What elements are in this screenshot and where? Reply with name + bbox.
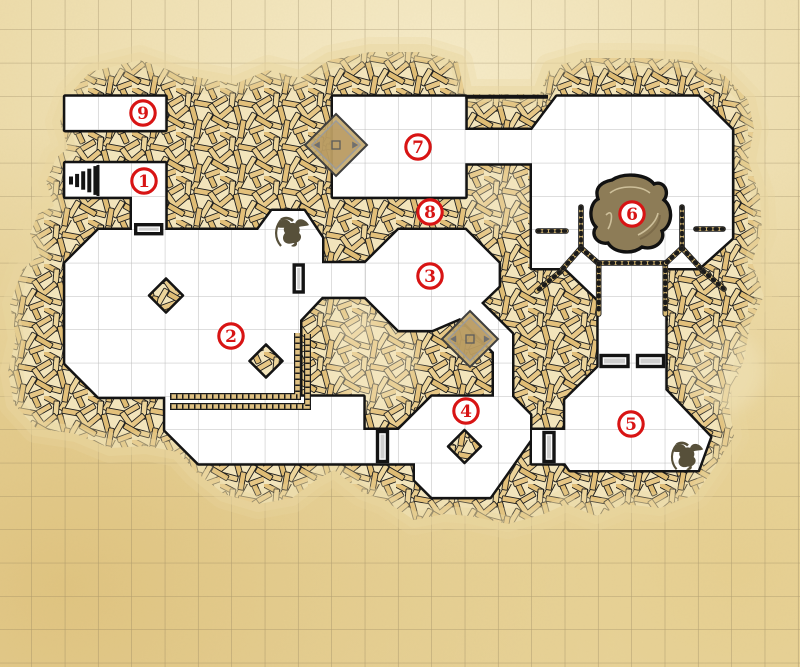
stairs-step-2 <box>81 171 85 189</box>
door-room1-south <box>136 225 162 234</box>
room-marker-label-2: 2 <box>225 327 237 347</box>
door-passage-b <box>638 356 664 367</box>
stairs-step-0 <box>69 177 73 185</box>
room-marker-2: 2 <box>219 324 243 348</box>
room-marker-label-4: 4 <box>460 402 472 422</box>
room-marker-label-1: 1 <box>138 172 150 192</box>
stairs-step-1 <box>75 174 79 187</box>
room-marker-7: 7 <box>406 135 430 159</box>
room-marker-1: 1 <box>132 169 156 193</box>
room-marker-3: 3 <box>418 264 442 288</box>
room-marker-label-3: 3 <box>424 267 436 287</box>
dungeon-map-stage: 123456789 <box>0 0 800 667</box>
room-marker-label-8: 8 <box>424 203 436 223</box>
room-marker-6: 6 <box>620 202 644 226</box>
room-marker-8: 8 <box>418 200 442 224</box>
room-marker-label-6: 6 <box>626 205 638 225</box>
room-marker-4: 4 <box>454 399 478 423</box>
stairs-step-3 <box>87 169 91 193</box>
dungeon-map-canvas: 123456789 <box>0 0 800 667</box>
room-marker-label-7: 7 <box>412 138 424 158</box>
room-marker-label-5: 5 <box>625 415 637 435</box>
door-passage-a <box>601 356 628 367</box>
door-room2-east <box>294 265 303 292</box>
room-marker-label-9: 9 <box>137 104 149 124</box>
room-marker-5: 5 <box>619 412 643 436</box>
door-room5-west <box>544 433 554 462</box>
room-marker-9: 9 <box>131 101 155 125</box>
door-room4-west <box>378 432 388 462</box>
